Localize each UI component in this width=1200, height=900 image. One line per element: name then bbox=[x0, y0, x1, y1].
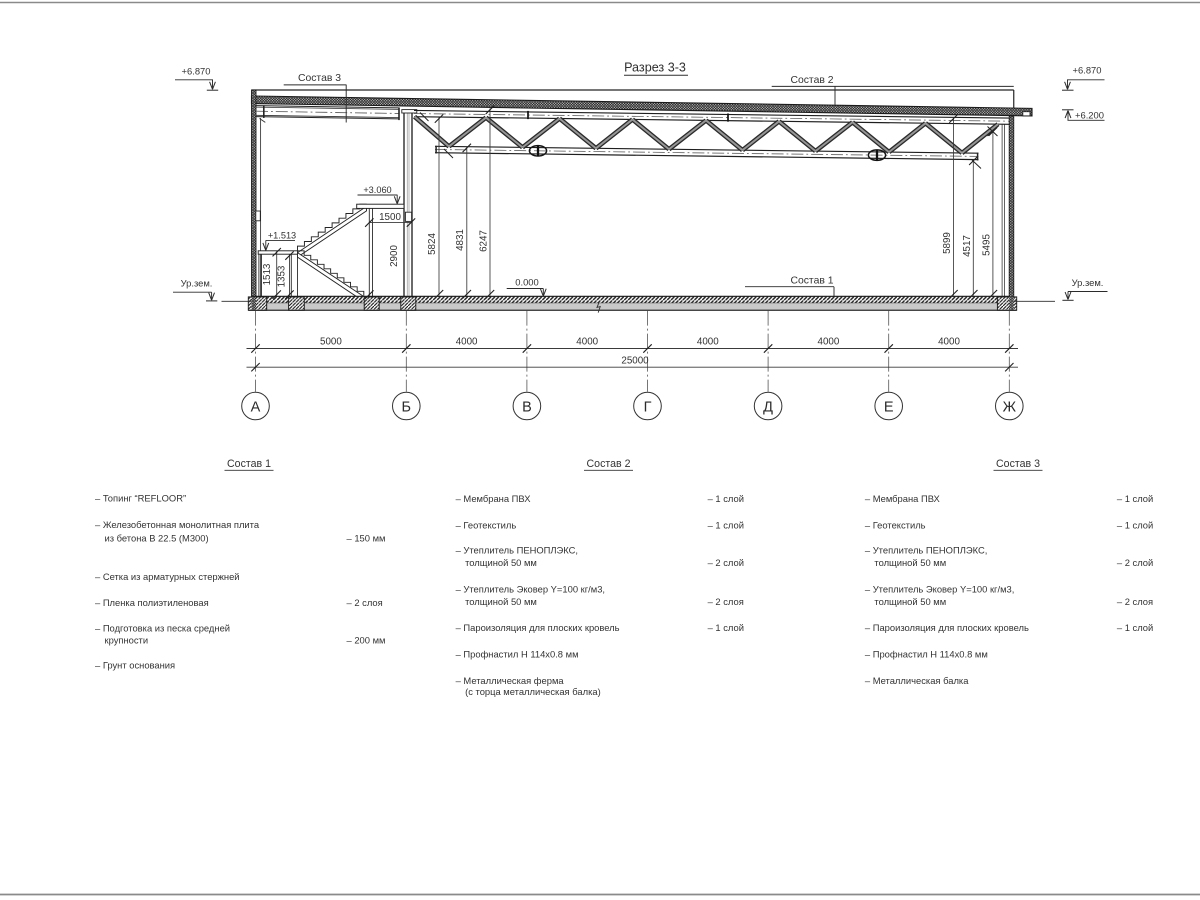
svg-text:2900: 2900 bbox=[389, 245, 400, 267]
svg-text:Состав 2: Состав 2 bbox=[587, 458, 631, 470]
svg-text:4517: 4517 bbox=[962, 235, 973, 257]
svg-text:Состав 1: Состав 1 bbox=[227, 458, 271, 470]
svg-text:4000: 4000 bbox=[938, 337, 960, 348]
svg-text:– Металлическая балка: – Металлическая балка bbox=[865, 675, 969, 686]
svg-text:Разрез 3-3: Разрез 3-3 bbox=[624, 61, 686, 75]
svg-text:из бетона В 22.5 (М300): из бетона В 22.5 (М300) bbox=[105, 533, 209, 544]
svg-text:– Утеплитель ПЕНОПЛЭКС,: – Утеплитель ПЕНОПЛЭКС, bbox=[865, 544, 987, 555]
svg-text:(с торца металлическая балка): (с торца металлическая балка) bbox=[465, 686, 601, 697]
svg-text:– Пленка полиэтиленовая: – Пленка полиэтиленовая bbox=[95, 597, 209, 608]
svg-text:– 150 мм: – 150 мм bbox=[347, 533, 386, 544]
svg-text:Д: Д bbox=[763, 399, 773, 415]
svg-text:6247: 6247 bbox=[479, 230, 490, 252]
svg-text:– 1 слой: – 1 слой bbox=[708, 519, 744, 530]
svg-text:– Металлическая ферма: – Металлическая ферма bbox=[456, 675, 565, 686]
svg-text:толщиной 50 мм: толщиной 50 мм bbox=[874, 596, 946, 607]
svg-text:– Подготовка из песка средней: – Подготовка из песка средней bbox=[95, 623, 230, 634]
svg-text:+6.870: +6.870 bbox=[182, 66, 211, 77]
svg-text:Состав 3: Состав 3 bbox=[298, 73, 341, 84]
svg-text:– Мембрана ПВХ: – Мембрана ПВХ bbox=[456, 493, 532, 504]
svg-text:25000: 25000 bbox=[621, 355, 649, 366]
svg-text:Ж: Ж bbox=[1003, 399, 1017, 415]
svg-text:– Геотекстиль: – Геотекстиль bbox=[865, 519, 926, 530]
svg-text:1353: 1353 bbox=[277, 265, 288, 287]
svg-text:+3.060: +3.060 bbox=[363, 185, 391, 195]
svg-text:толщиной 50 мм: толщиной 50 мм bbox=[874, 557, 946, 568]
svg-text:– Геотекстиль: – Геотекстиль bbox=[456, 519, 517, 530]
svg-text:5000: 5000 bbox=[320, 337, 342, 348]
svg-text:– 1 слой: – 1 слой bbox=[1117, 622, 1153, 633]
svg-text:5899: 5899 bbox=[942, 232, 953, 254]
svg-text:– Профнастил Н 114х0.8 мм: – Профнастил Н 114х0.8 мм bbox=[456, 648, 579, 659]
svg-text:0.000: 0.000 bbox=[515, 276, 538, 287]
svg-text:– 1 слой: – 1 слой bbox=[1117, 519, 1153, 530]
svg-text:В: В bbox=[522, 399, 532, 415]
svg-text:Г: Г bbox=[644, 399, 652, 415]
svg-text:– 1 слой: – 1 слой bbox=[708, 493, 744, 504]
svg-text:– Пароизоляция для плоских кр: – Пароизоляция для плоских кровель bbox=[456, 622, 620, 633]
svg-text:5824: 5824 bbox=[427, 233, 438, 255]
svg-text:– Утеплитель Эковер Y=100 кг/: – Утеплитель Эковер Y=100 кг/м3, bbox=[456, 583, 605, 594]
svg-text:– 2 слой: – 2 слой bbox=[708, 557, 744, 568]
svg-text:– 1 слой: – 1 слой bbox=[1117, 493, 1153, 504]
svg-text:+6.200: +6.200 bbox=[1075, 110, 1104, 121]
svg-text:4000: 4000 bbox=[818, 337, 840, 348]
svg-text:– Утеплитель ПЕНОПЛЭКС,: – Утеплитель ПЕНОПЛЭКС, bbox=[456, 544, 578, 555]
svg-text:– Грунт основания: – Грунт основания bbox=[95, 659, 175, 670]
svg-text:4000: 4000 bbox=[697, 337, 719, 348]
svg-text:– 2 слой: – 2 слой bbox=[1117, 557, 1153, 568]
svg-text:– Профнастил Н 114х0.8 мм: – Профнастил Н 114х0.8 мм bbox=[865, 648, 988, 659]
svg-text:Состав 3: Состав 3 bbox=[996, 458, 1040, 470]
svg-text:Б: Б bbox=[402, 399, 412, 415]
svg-text:4831: 4831 bbox=[455, 229, 466, 251]
svg-text:– Топинг “REFLOOR”: – Топинг “REFLOOR” bbox=[95, 493, 186, 504]
svg-text:Е: Е bbox=[884, 399, 894, 415]
svg-text:крупности: крупности bbox=[105, 634, 149, 645]
svg-text:– Железобетонная монолитная: – Железобетонная монолитная плита bbox=[95, 519, 260, 530]
svg-text:4000: 4000 bbox=[456, 337, 478, 348]
svg-text:Ур.зем.: Ур.зем. bbox=[1072, 277, 1104, 288]
svg-text:1500: 1500 bbox=[379, 212, 401, 223]
svg-text:5495: 5495 bbox=[981, 234, 992, 256]
svg-text:+6.870: +6.870 bbox=[1073, 65, 1102, 76]
svg-text:Ур.зем.: Ур.зем. bbox=[181, 278, 213, 289]
svg-text:– Сетка из арматурных стержне: – Сетка из арматурных стержней bbox=[95, 571, 240, 582]
svg-text:+1.513: +1.513 bbox=[268, 230, 296, 240]
svg-text:– Пароизоляция для плоских кр: – Пароизоляция для плоских кровель bbox=[865, 622, 1029, 633]
svg-text:Состав 1: Состав 1 bbox=[790, 275, 833, 286]
svg-text:толщиной 50 мм: толщиной 50 мм bbox=[465, 557, 537, 568]
svg-text:– Утеплитель Эковер Y=100 кг/: – Утеплитель Эковер Y=100 кг/м3, bbox=[865, 583, 1014, 594]
svg-text:1513: 1513 bbox=[262, 263, 273, 285]
svg-text:– 200 мм: – 200 мм bbox=[347, 634, 386, 645]
svg-text:– 2 слоя: – 2 слоя bbox=[347, 597, 383, 608]
svg-text:– 2 слоя: – 2 слоя bbox=[1117, 596, 1153, 607]
svg-text:– Мембрана ПВХ: – Мембрана ПВХ bbox=[865, 493, 941, 504]
svg-text:А: А bbox=[251, 399, 261, 415]
svg-text:– 2 слоя: – 2 слоя bbox=[708, 596, 744, 607]
svg-text:– 1 слой: – 1 слой bbox=[708, 622, 744, 633]
svg-text:толщиной 50 мм: толщиной 50 мм bbox=[465, 596, 537, 607]
svg-text:4000: 4000 bbox=[576, 337, 598, 348]
svg-text:Состав 2: Состав 2 bbox=[790, 75, 833, 86]
